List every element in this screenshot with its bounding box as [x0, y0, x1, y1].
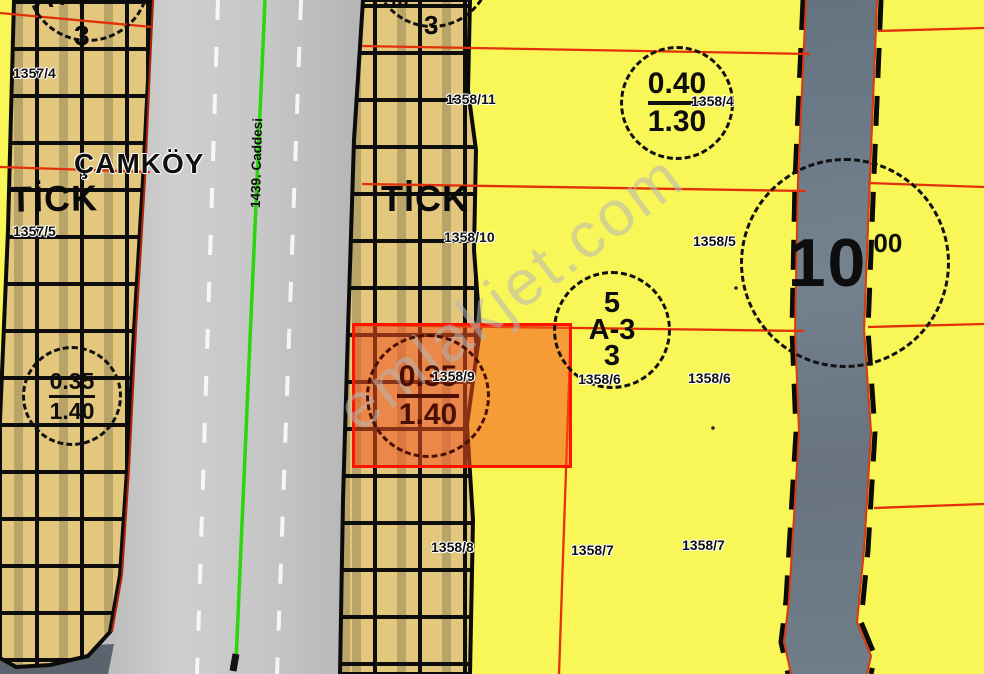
ratio-bottom: 1.40: [399, 400, 457, 430]
parcel-label-1358-5: 1358/5: [693, 234, 736, 248]
parcel-label-1358-10: 1358/10: [444, 230, 495, 244]
ratio-bottom: 1.40: [50, 400, 95, 423]
parcel-label-1358-4: 1358/4: [691, 94, 734, 108]
parcel-line: [878, 28, 984, 31]
partial-annotation-fragment: m: [391, 0, 409, 12]
parcel-label-1358-9: 1358/9: [432, 369, 475, 383]
road-width-sup: 00: [873, 230, 902, 256]
cadastral-map-canvas: emlakjet.com A+4 3 m 3 0.35 1.40 0.40 1.…: [0, 0, 984, 674]
partial-annotation-fragment: A+4: [34, 0, 86, 12]
parcel-label-1357-5: 1357/5: [13, 224, 56, 238]
block-line1: 5: [604, 290, 620, 317]
parcel-label-1358-8: 1358/8: [431, 540, 474, 554]
ratio-top: 0.35: [50, 370, 95, 393]
district-label: ÇAMKÖY: [74, 150, 204, 178]
road-width-value: 10: [788, 229, 868, 297]
zone-label-tick-left: TİCK: [10, 180, 99, 218]
parcel-line: [874, 504, 984, 508]
partial-annotation-digit: 3: [74, 22, 90, 50]
survey-dot: [734, 286, 738, 290]
zone-label-tick-middle: TİCK: [381, 181, 469, 217]
road-width-circle: 10 00: [740, 158, 950, 368]
parcel-label-1358-11: 1358/11: [446, 92, 496, 106]
partial-annotation-digit: 3: [424, 12, 438, 38]
parcel-label-1358-7: 1358/7: [682, 538, 725, 552]
parcel-label-1358-6: 1358/6: [578, 372, 621, 386]
ratio-bottom: 1.30: [648, 107, 706, 137]
ratio-circle-left: 0.35 1.40: [22, 346, 122, 446]
block-line2: A-3: [589, 317, 636, 344]
parcel-label-1358-6: 1358/6: [688, 371, 731, 385]
parcel-label-1358-7: 1358/7: [571, 543, 614, 557]
survey-dot: [711, 426, 715, 430]
parcel-label-1357-4: 1357/4: [13, 66, 56, 80]
block-line3: 3: [604, 343, 620, 370]
ratio-circle-highlight: 0.35 1.40: [366, 334, 490, 458]
